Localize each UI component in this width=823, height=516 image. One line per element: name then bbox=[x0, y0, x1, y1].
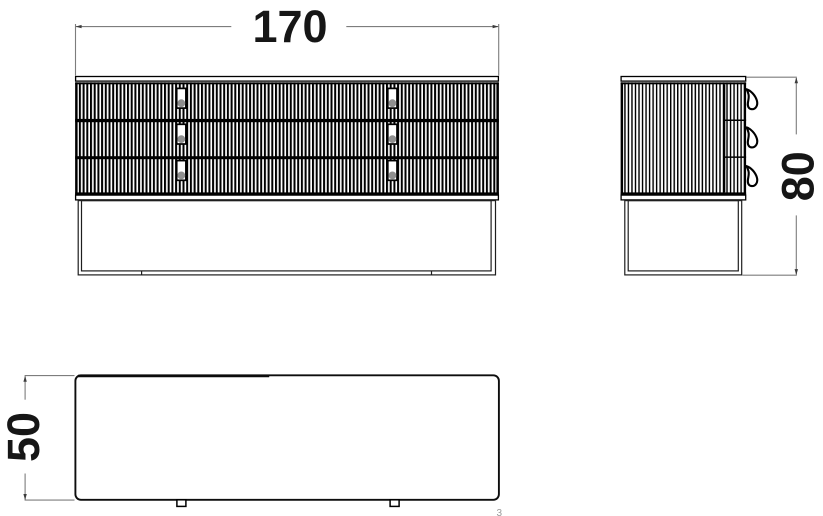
svg-text:3: 3 bbox=[497, 508, 503, 516]
svg-text:170: 170 bbox=[252, 1, 327, 52]
svg-text:50: 50 bbox=[0, 412, 49, 462]
svg-text:80: 80 bbox=[773, 151, 823, 201]
